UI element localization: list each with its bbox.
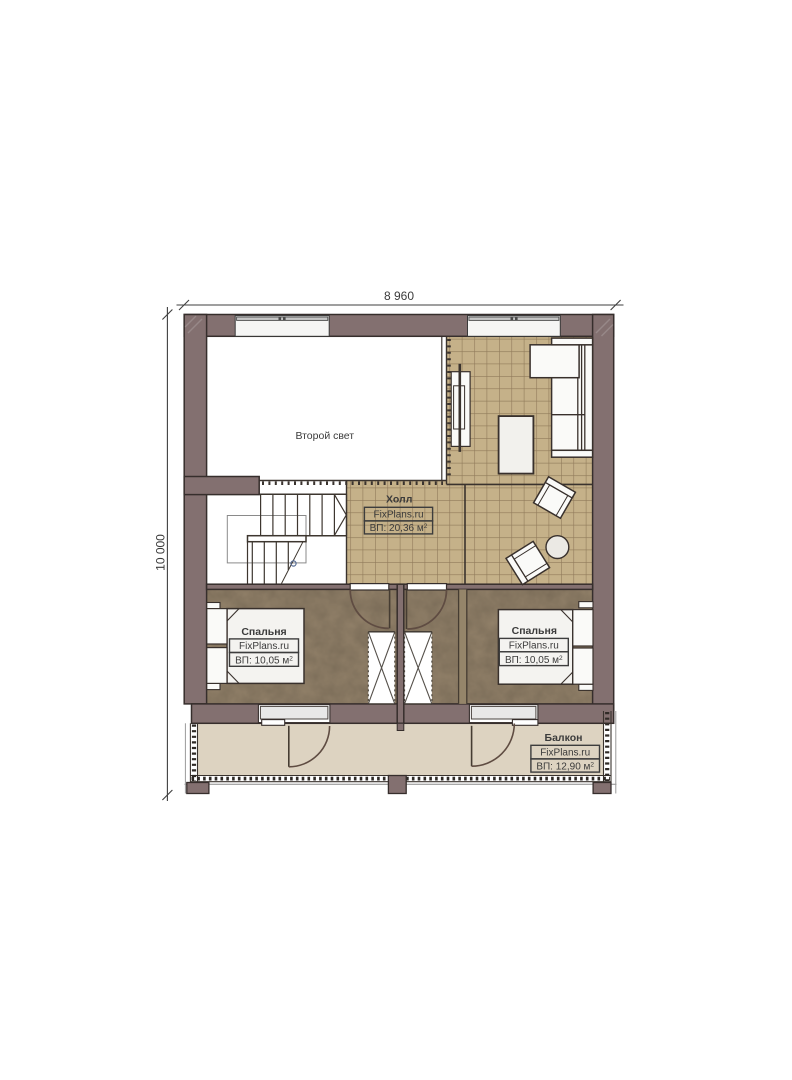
svg-text:Холл: Холл [386,494,412,506]
svg-text:ВП: 10,05 м2: ВП: 10,05 м2 [505,655,563,666]
svg-text:ВП: 10,05 м2: ВП: 10,05 м2 [235,656,293,667]
svg-text:FixPlans.ru: FixPlans.ru [373,510,423,521]
svg-text:Второй свет: Второй свет [295,430,354,442]
svg-text:FixPlans.ru: FixPlans.ru [509,641,559,652]
svg-text:8 960: 8 960 [384,289,414,303]
svg-text:Спальня: Спальня [512,625,557,637]
svg-text:ВП: 12,90 м2: ВП: 12,90 м2 [536,761,594,772]
svg-text:10 000: 10 000 [154,534,168,571]
svg-text:ВП: 20,36 м2: ВП: 20,36 м2 [370,523,428,534]
svg-text:Спальня: Спальня [241,626,286,638]
svg-text:Балкон: Балкон [545,732,583,744]
svg-text:FixPlans.ru: FixPlans.ru [540,748,590,759]
svg-text:FixPlans.ru: FixPlans.ru [239,641,289,652]
